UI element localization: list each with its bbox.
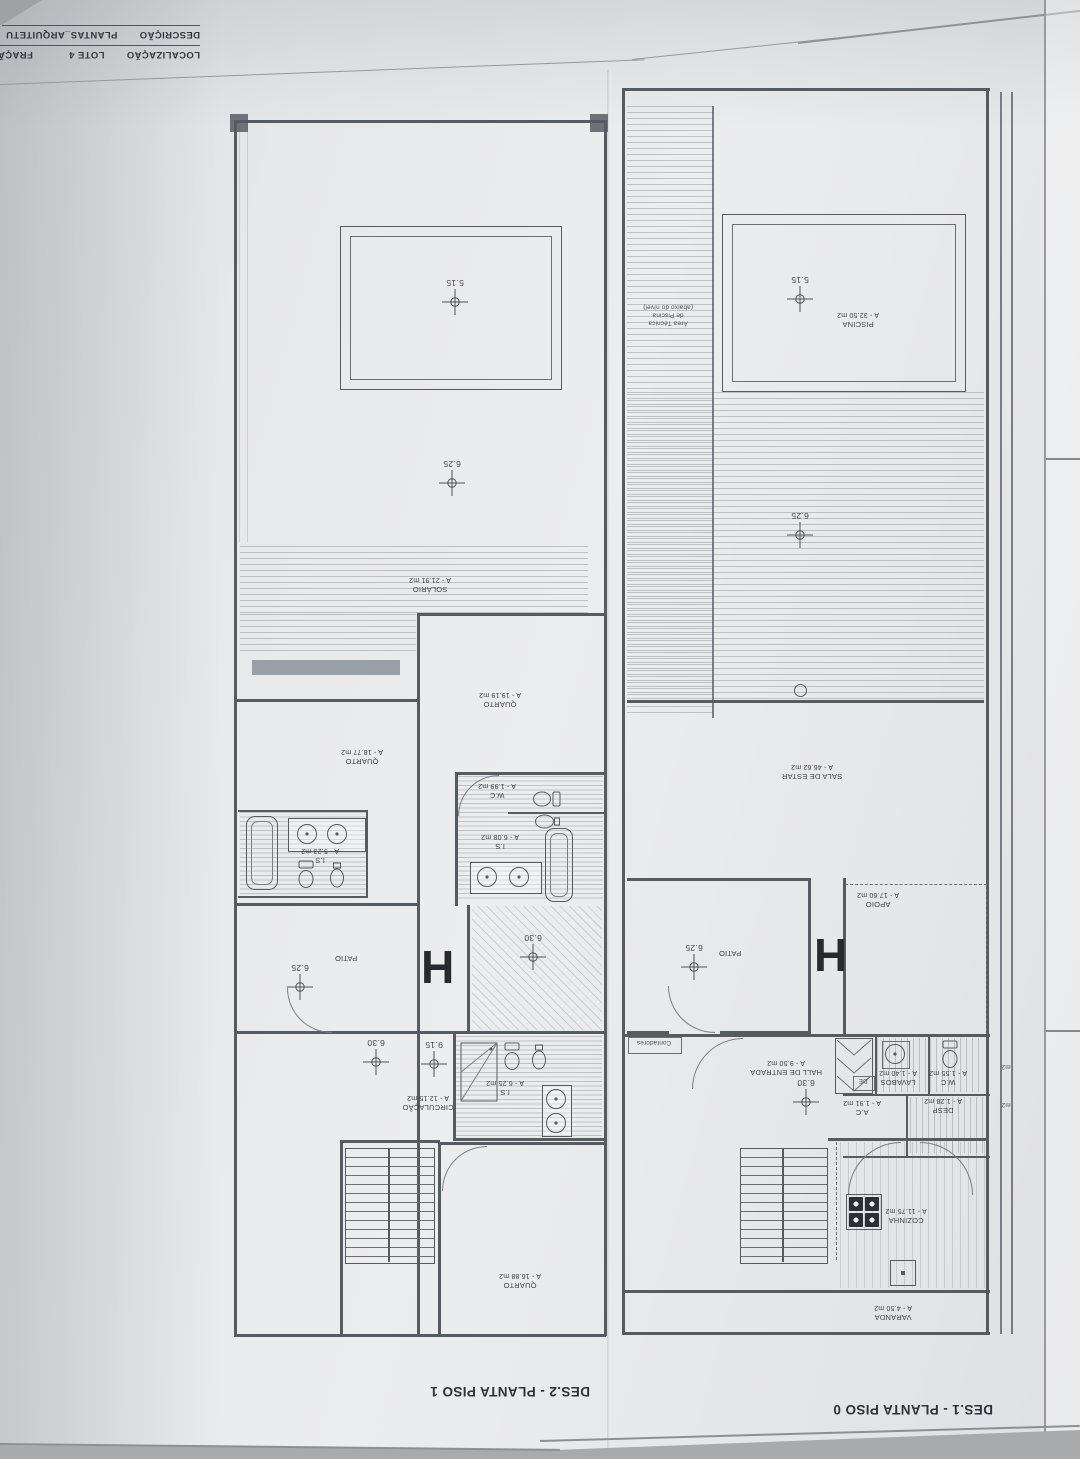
dimension-label: 5.15 — [791, 275, 809, 285]
wall — [622, 1332, 990, 1335]
toilet-icon — [940, 1040, 960, 1070]
fragment: m2 — [961, 1100, 1051, 1108]
room-name: COZINHA — [851, 1215, 961, 1225]
staircase — [740, 1148, 828, 1264]
room-label-varanda: VARANDA A - 4.50 m2 — [838, 1303, 948, 1322]
wall — [627, 700, 984, 703]
pool-inner — [732, 224, 956, 382]
dimension-label: 6.25 — [685, 943, 703, 953]
dimension-marker: 6.25 — [672, 943, 716, 980]
room-name: VARANDA — [838, 1312, 948, 1322]
crosshair-icon — [787, 286, 813, 312]
room-name: Contadores — [609, 1038, 699, 1046]
plan-caption-piso-0: DES.1 - PLANTA PISO 0 — [833, 1402, 993, 1417]
wall — [622, 88, 625, 1334]
wall-beyond-fold — [1000, 92, 1002, 1334]
room-name: W.C — [893, 1077, 1003, 1087]
note-line: (abaixo do nível) — [623, 302, 713, 310]
note-line: Área Técnica — [623, 318, 713, 326]
meters-label: Contadores — [609, 1038, 699, 1046]
dimension-label: 6.25 — [791, 511, 809, 521]
crosshair-icon — [787, 522, 813, 548]
wall-beyond-fold — [1011, 92, 1013, 1334]
room-name: APOIO — [823, 899, 933, 909]
wall — [627, 878, 810, 881]
cut-label-fragment: m2 — [961, 1100, 1051, 1108]
wall — [808, 878, 811, 1034]
wall — [986, 88, 989, 1334]
room-name: SALA DE ESTAR — [757, 771, 867, 781]
room-area: A - 17.60 m2 — [823, 890, 933, 899]
room-label-wc: W.C A - 1.55 m2 — [893, 1068, 1003, 1087]
architectural-drawing-sheet: LOCALIZAÇÃO LOTE 4 FRAÇÃO "H"_MORAD DESC… — [0, 0, 1080, 1459]
fragment: m2 — [961, 1062, 1051, 1070]
wall — [828, 1138, 988, 1141]
note-line: de Piscina — [623, 310, 713, 318]
room-area: A - 11.75 m2 — [851, 1206, 961, 1215]
crosshair-icon — [681, 954, 707, 980]
room-label-sala: SALA DE ESTAR A - 46.62 m2 — [757, 762, 867, 781]
wall — [622, 88, 990, 91]
dimension-marker: 6.25 — [778, 511, 822, 548]
sink-icon — [882, 1041, 908, 1067]
unit-letter-h: H — [814, 932, 847, 978]
pool-technical-area-note: Área Técnica de Piscina (abaixo do nível… — [623, 302, 713, 327]
room-label-apoio: APOIO A - 17.60 m2 — [823, 890, 933, 909]
plan-caption-piso-1: DES.2 - PLANTA PISO 1 — [430, 1384, 590, 1399]
dimension-marker: 5.15 — [778, 275, 822, 312]
room-name: PISCINA — [803, 319, 913, 329]
cut-label-fragment: m2 — [961, 1062, 1051, 1070]
dimension-label: 6.30 — [797, 1078, 815, 1088]
room-label-piscina: PISCINA A - 32.50 m2 — [803, 310, 913, 329]
room-area: A - 46.62 m2 — [757, 762, 867, 771]
room-label-hall: HALL DE ENTRADA A - 9.50 m2 — [731, 1058, 841, 1077]
room-label-cozinha: COZINHA A - 11.75 m2 — [851, 1206, 961, 1225]
floor-plan-piso-0: Área Técnica de Piscina (abaixo do nível… — [0, 0, 1080, 1459]
wall — [622, 1290, 990, 1293]
drain-circle — [794, 684, 807, 697]
door-swing — [668, 986, 715, 1033]
stair-stringer — [782, 1148, 784, 1262]
kitchen-sink-icon — [890, 1260, 916, 1286]
room-area: A - 4.50 m2 — [838, 1303, 948, 1312]
kitchen-dashed-line — [836, 1142, 837, 1260]
room-area: A - 9.50 m2 — [731, 1058, 841, 1067]
